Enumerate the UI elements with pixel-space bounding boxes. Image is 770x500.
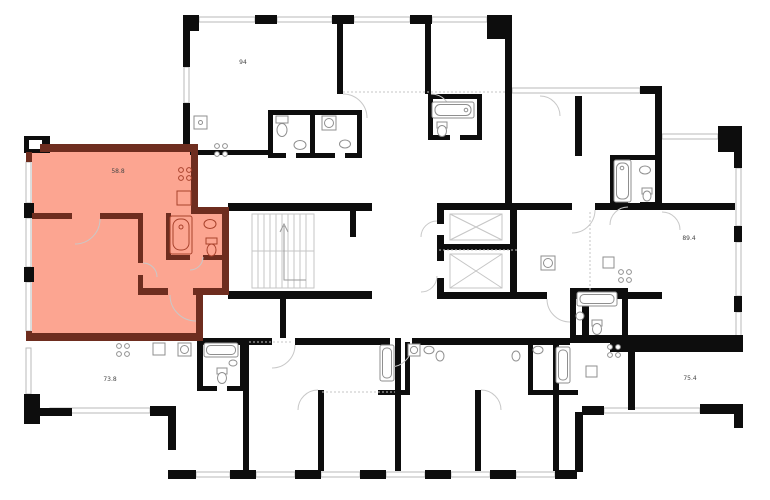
washer-icon: [322, 116, 336, 130]
unit-area-label-94: 94: [239, 59, 247, 66]
unit-area-label-89-4: 89.4: [682, 235, 696, 242]
washer-icon: [541, 256, 555, 270]
washer-icon: [408, 344, 420, 356]
sink-icon: [340, 140, 351, 148]
sink-icon: [294, 141, 306, 150]
sink-icon: [204, 220, 216, 229]
elevator-shaft-1: [450, 214, 502, 240]
sink-icon: [533, 346, 543, 354]
unit-area-label-75-4: 75.4: [683, 375, 697, 382]
bathtub-icon: [577, 292, 617, 306]
unit-region-73-8[interactable]: [32, 342, 246, 470]
sink-icon: [424, 346, 434, 354]
floor-plan-canvas: 94 58.8 89.4 73.8 75.4: [0, 0, 770, 500]
sink-icon: [576, 312, 584, 320]
toilet-icon: [436, 351, 444, 361]
toilet-icon: [592, 320, 602, 335]
sink-icon: [229, 360, 237, 366]
sink-icon: [153, 343, 165, 355]
elevator-shaft-2: [450, 254, 502, 288]
floor-plan: 94 58.8 89.4 73.8 75.4: [0, 0, 770, 500]
toilet-icon: [217, 368, 227, 384]
unit-area-label-58-8: 58.8: [111, 168, 125, 175]
elevator-x-mark: [450, 214, 502, 240]
stair-direction-arrow: [280, 224, 306, 280]
toilet-icon: [437, 122, 447, 137]
bathtub-icon: [556, 347, 570, 383]
unit-area-label-73-8: 73.8: [103, 376, 117, 383]
toilet-icon: [642, 188, 652, 201]
toilet-icon: [512, 351, 520, 361]
bathtub-icon: [614, 160, 631, 202]
washer-icon: [178, 343, 191, 356]
elevator-shafts: [450, 214, 502, 288]
toilet-icon: [206, 238, 217, 256]
bathtub-icon: [432, 102, 474, 118]
bathtub-icon: [380, 345, 394, 381]
sink-icon: [640, 166, 651, 174]
sink-icon: [603, 257, 614, 268]
sink-icon: [194, 116, 207, 129]
sink-icon: [586, 366, 597, 377]
toilet-icon: [276, 116, 288, 137]
bathtub-icon: [170, 216, 192, 254]
stairwell: [252, 214, 314, 288]
bathtub-icon: [204, 343, 238, 357]
elevator-x-mark: [450, 254, 502, 288]
sink-icon: [177, 191, 191, 205]
